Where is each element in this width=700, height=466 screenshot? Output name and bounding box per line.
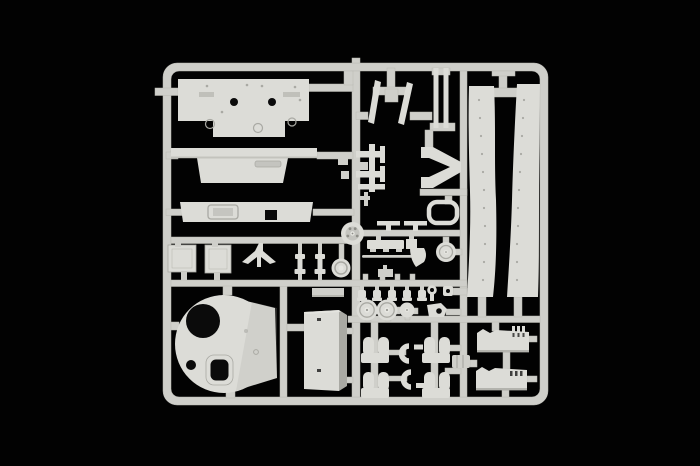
runner-stub <box>317 152 353 159</box>
part-road-wheel-3 <box>400 303 415 318</box>
runner-stub <box>223 286 232 295</box>
runner-stub <box>346 328 353 334</box>
runner-stub <box>492 71 515 76</box>
part-stowage-bin <box>304 310 347 391</box>
part-road-wheel-2 <box>377 300 398 321</box>
runner-stub <box>313 209 354 216</box>
part-muffler-box-2 <box>476 367 527 391</box>
hatch-opening <box>211 360 229 381</box>
runner-stub <box>446 309 461 315</box>
rear-plate-opening <box>265 210 277 220</box>
runner-stub <box>166 209 182 216</box>
part-drive-sprocket <box>341 222 364 245</box>
part-turret-roof <box>175 295 277 393</box>
runner-stub <box>529 336 537 342</box>
rear-plate-hatch-inner <box>213 208 233 216</box>
runner-stub <box>339 244 344 259</box>
sprue-gate-block <box>452 355 470 368</box>
runner-stub <box>502 390 509 397</box>
runner-stub <box>514 297 522 317</box>
part-road-wheel-1 <box>357 300 378 321</box>
runner-stub <box>363 274 368 280</box>
part-fender-left <box>467 86 496 297</box>
runner-stub <box>470 360 477 367</box>
runner-stub <box>410 274 415 280</box>
part-hull-rear-plate <box>180 202 313 222</box>
runner-stub <box>155 88 178 96</box>
runner-stub <box>478 297 486 317</box>
runner-horizontal <box>420 189 467 196</box>
runner-stub <box>356 112 368 120</box>
glacis-hatch <box>255 161 281 167</box>
runner-horizontal <box>171 280 467 287</box>
runner-stub <box>527 376 537 382</box>
runner-horizontal <box>358 230 460 236</box>
runner-stub <box>453 288 467 295</box>
runner-stub <box>346 377 353 383</box>
runner-block <box>385 89 398 102</box>
part-eyelet-plate <box>443 286 453 296</box>
runner-stub <box>344 71 353 85</box>
cupola-opening <box>186 304 220 338</box>
runner-stub <box>395 274 400 280</box>
runner-horizontal <box>171 237 352 244</box>
part-idler-disc <box>332 259 351 278</box>
sprue-photo <box>0 0 700 466</box>
runner-stub <box>387 68 395 88</box>
photo-stage <box>0 0 700 466</box>
glacis-edge-shadow <box>171 157 317 159</box>
runner-stub <box>287 324 304 331</box>
part-barrel-rod-1 <box>434 68 439 128</box>
part-barrel-rod-2 <box>444 68 449 128</box>
periscope-hole <box>186 360 196 370</box>
part-bracket-bar <box>312 288 344 297</box>
runner-stub <box>503 350 510 369</box>
runner-gate-stub <box>352 58 360 63</box>
runner-turret-vertical <box>280 286 287 397</box>
runner-stub <box>492 322 499 331</box>
part-wheel-disc <box>436 242 456 262</box>
runner-stub <box>410 112 432 120</box>
